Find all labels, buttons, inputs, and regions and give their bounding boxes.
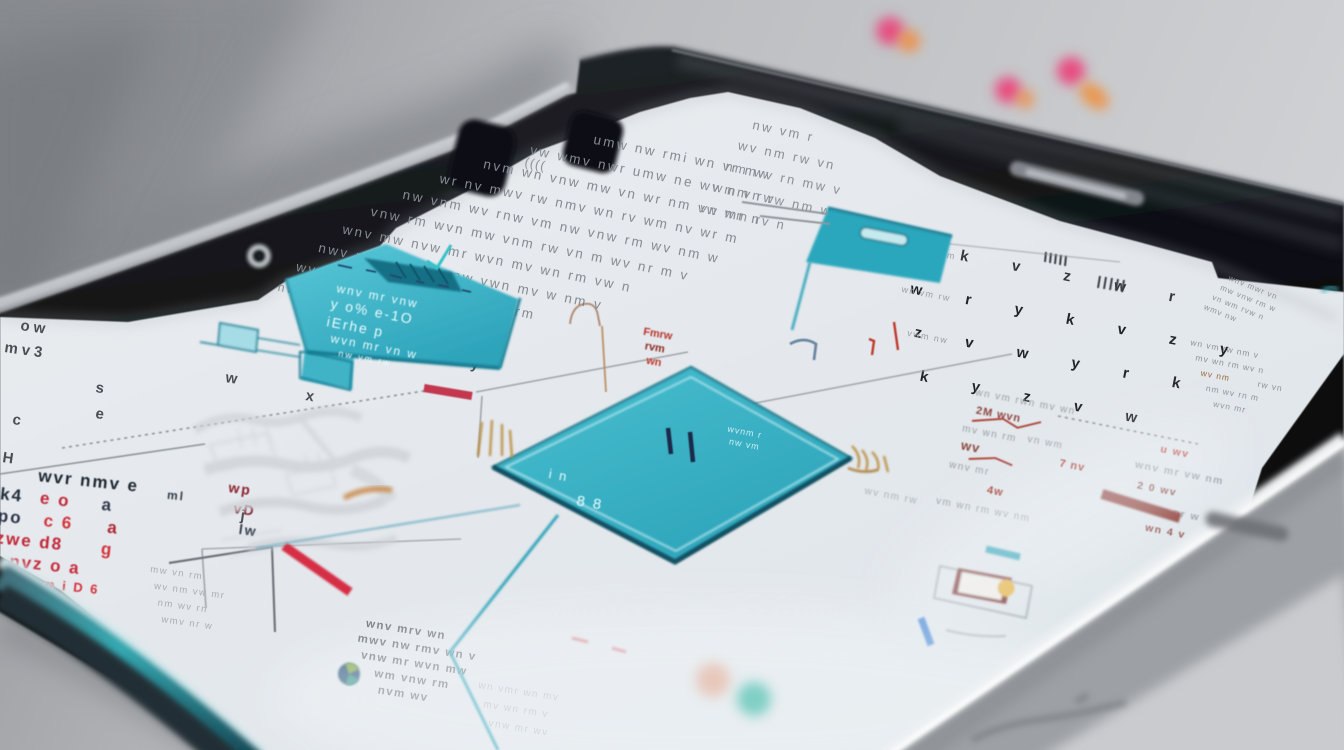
svg-text:c 6: c 6 — [43, 511, 74, 533]
svg-text:k4: k4 — [0, 484, 24, 505]
svg-text:a: a — [106, 518, 119, 538]
svg-text:ml: ml — [166, 488, 185, 504]
svg-text:po: po — [0, 506, 24, 527]
svg-text:wp: wp — [227, 479, 253, 498]
svg-text:g: g — [100, 539, 114, 559]
svg-text:a: a — [101, 495, 114, 515]
svg-text:e o: e o — [39, 489, 71, 511]
